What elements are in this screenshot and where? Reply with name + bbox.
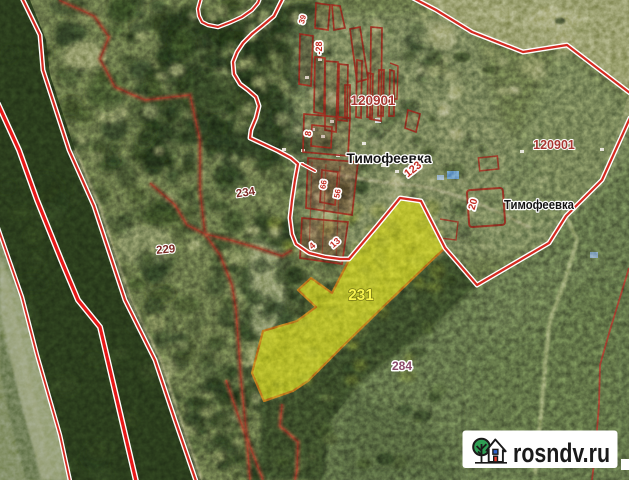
svg-text:231: 231: [348, 287, 374, 304]
svg-text:Тимофеевка: Тимофеевка: [504, 198, 575, 212]
svg-text:13: 13: [328, 236, 342, 250]
svg-text:229: 229: [156, 243, 176, 257]
svg-text:284: 284: [392, 359, 412, 373]
svg-text:8: 8: [303, 130, 314, 137]
svg-text:120901: 120901: [533, 138, 575, 152]
svg-text:56: 56: [332, 188, 343, 199]
svg-text:20: 20: [467, 197, 481, 211]
svg-text:234: 234: [235, 186, 256, 201]
svg-text:66: 66: [318, 179, 329, 190]
svg-text:4: 4: [307, 240, 317, 251]
svg-text:rosndv.ru: rosndv.ru: [513, 438, 610, 468]
svg-text:39: 39: [297, 13, 308, 24]
svg-text:120901: 120901: [350, 93, 396, 108]
svg-text:-28: -28: [314, 41, 324, 54]
